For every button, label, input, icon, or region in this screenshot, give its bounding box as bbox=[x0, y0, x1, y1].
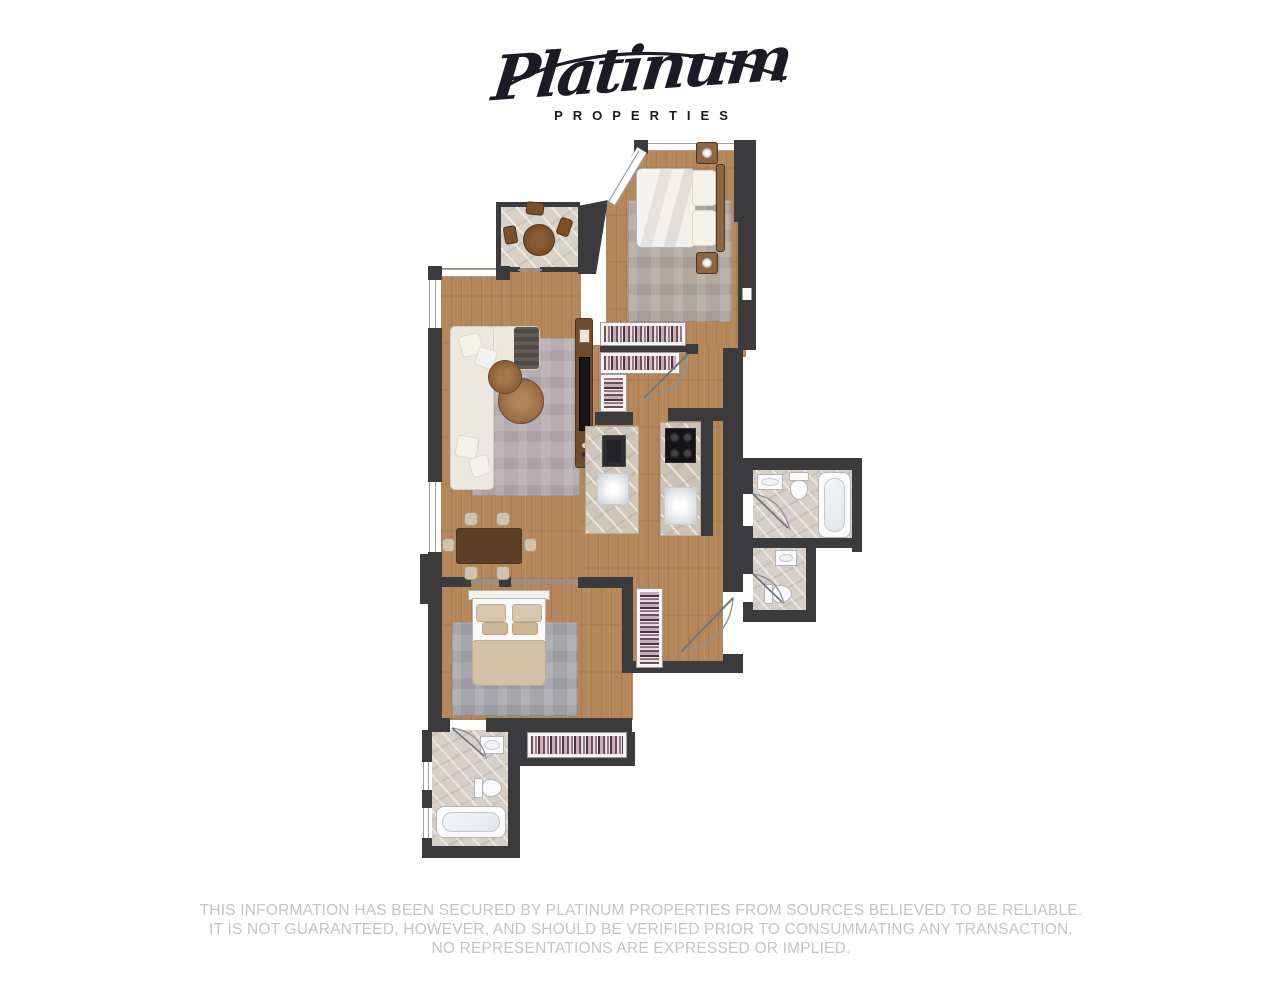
floor-plan bbox=[420, 140, 866, 866]
brand-logo: Platinum PROPERTIES bbox=[491, 34, 791, 123]
disclaimer-line: THIS INFORMATION HAS BEEN SECURED BY PLA… bbox=[0, 901, 1282, 920]
brand-name: Platinum bbox=[489, 24, 794, 114]
disclaimer-line: IT IS NOT GUARANTEED, HOWEVER, AND SHOUL… bbox=[0, 920, 1282, 939]
disclaimer: THIS INFORMATION HAS BEEN SECURED BY PLA… bbox=[0, 901, 1282, 958]
disclaimer-line: NO REPRESENTATIONS ARE EXPRESSED OR IMPL… bbox=[0, 939, 1282, 958]
floor-plan-flyer: { "brand": { "name": "Platinum", "taglin… bbox=[0, 0, 1282, 1000]
door-swings-layer bbox=[420, 140, 866, 866]
